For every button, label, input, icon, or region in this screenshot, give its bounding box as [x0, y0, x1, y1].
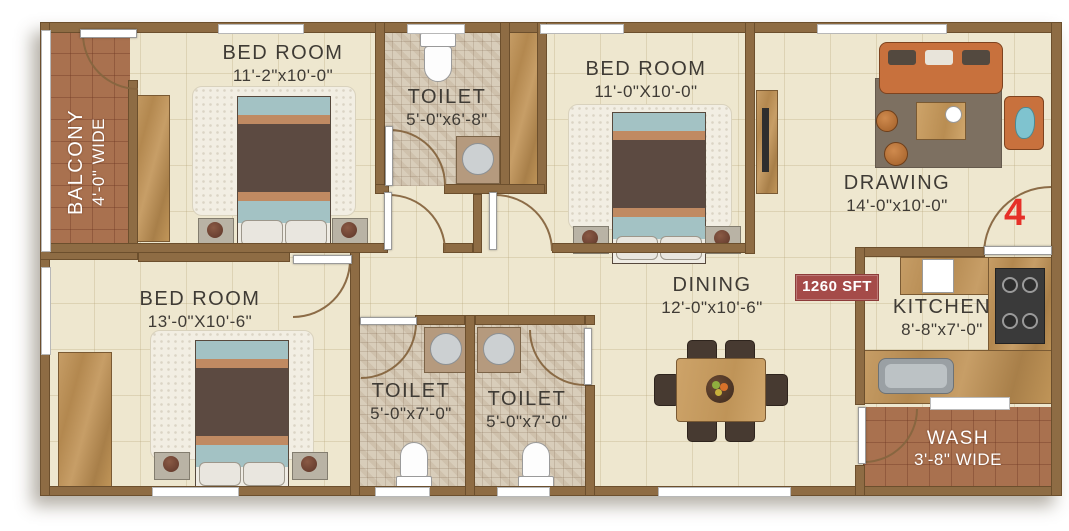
- room-name: TOILET: [387, 86, 507, 110]
- door-leaf: [385, 126, 393, 186]
- wall: [552, 243, 755, 253]
- room-name: TOILET: [468, 388, 586, 412]
- bedroom2-wardrobe: [508, 31, 540, 186]
- burner: [1022, 277, 1038, 293]
- balcony-railing: [41, 30, 51, 252]
- stool: [876, 110, 898, 132]
- room-name: BALCONY: [65, 57, 89, 267]
- label-bedroom-top-left: BED ROOM 11'-2"x10'-0": [203, 42, 363, 86]
- fridge: [922, 259, 954, 293]
- door-leaf: [858, 407, 866, 464]
- room-name: DINING: [632, 274, 792, 298]
- wall: [585, 315, 595, 325]
- toilet-bl-wc: [400, 442, 428, 478]
- room-name: WASH: [878, 428, 1038, 450]
- window: [152, 487, 239, 497]
- window: [497, 487, 550, 497]
- kitchen-sink: [878, 358, 954, 394]
- window: [658, 487, 791, 497]
- door-leaf: [489, 192, 497, 250]
- floor-plan: BALCONY 4'-0" WIDE BED ROOM 11'-2"x10'-0…: [0, 0, 1069, 531]
- room-dims: 11'-0"X10'-0": [566, 82, 726, 102]
- door-leaf: [384, 192, 392, 250]
- burner: [1002, 277, 1018, 293]
- label-balcony: BALCONY 4'-0" WIDE: [65, 57, 111, 267]
- room-dims: 5'-0"x6'-8": [387, 110, 507, 130]
- toilet-top-wash-basin: [462, 143, 494, 175]
- tv: [762, 108, 769, 172]
- door-leaf: [293, 255, 352, 264]
- room-dims: 5'-0"x7'-0": [468, 412, 586, 432]
- armchair-cushion: [1015, 107, 1035, 139]
- room-name: BED ROOM: [203, 42, 363, 66]
- room-dims: 8'-8"x7'-0": [862, 320, 1022, 340]
- stool: [884, 142, 908, 166]
- bedroom3-pillow: [199, 462, 241, 486]
- sink-basin: [885, 364, 947, 388]
- room-name: TOILET: [352, 380, 470, 404]
- wall: [350, 252, 360, 496]
- wall: [473, 194, 482, 253]
- room-name: BED ROOM: [566, 58, 726, 82]
- label-dining: DINING 12'-0"x10'-6": [632, 274, 792, 318]
- table-decor: [945, 106, 962, 123]
- window: [407, 24, 465, 34]
- room-dims: 12'-0"x10'-6": [632, 298, 792, 318]
- burner: [1022, 313, 1038, 329]
- window: [41, 267, 51, 355]
- room-dims: 4'-0" WIDE: [89, 57, 109, 267]
- bedroom3-lamp: [301, 456, 317, 472]
- toilet-top-wc-tank: [420, 33, 456, 47]
- label-bedroom-bottom-left: BED ROOM 13'-0"X10'-6": [120, 288, 280, 332]
- wall: [745, 22, 755, 254]
- window: [375, 487, 430, 497]
- bedroom1-lamp: [207, 222, 223, 238]
- wall: [128, 80, 138, 260]
- toilet-br-wc: [522, 442, 550, 478]
- toilet-top-wc: [424, 46, 452, 82]
- room-dims: 3'-8" WIDE: [878, 450, 1038, 470]
- wall: [475, 315, 585, 325]
- wall: [1051, 22, 1062, 496]
- window: [540, 24, 624, 34]
- wall: [375, 22, 385, 194]
- wall: [585, 385, 595, 496]
- unit-number: 4: [1004, 192, 1025, 235]
- main-door-leaf: [984, 246, 1052, 255]
- label-toilet-bottom-left: TOILET 5'-0"x7'-0": [352, 380, 470, 424]
- wall: [415, 315, 465, 325]
- room-dims: 13'-0"X10'-6": [120, 312, 280, 332]
- bedroom1-lamp: [341, 222, 357, 238]
- wall: [138, 252, 290, 262]
- room-dims: 14'-0"x10'-0": [817, 196, 977, 216]
- wall: [855, 465, 865, 496]
- bedroom3-pillow: [243, 462, 285, 486]
- sofa-cushion: [925, 50, 953, 65]
- label-drawing: DRAWING 14'-0"x10'-0": [817, 172, 977, 216]
- room-name: KITCHEN: [862, 296, 1022, 320]
- wall: [443, 243, 473, 253]
- fruit: [715, 389, 722, 396]
- bedroom3-wardrobe: [58, 352, 112, 492]
- door-leaf: [584, 328, 592, 385]
- door-leaf: [80, 29, 137, 38]
- area-badge: 1260 SFT: [795, 274, 879, 301]
- sofa-cushion: [962, 50, 990, 65]
- fruit: [712, 381, 720, 389]
- window: [218, 24, 304, 34]
- toilet-bl-wash-basin: [430, 333, 462, 365]
- kitchen-step: [930, 397, 1010, 410]
- wall: [855, 247, 985, 257]
- sofa-cushion: [888, 50, 916, 65]
- label-toilet-bottom-right: TOILET 5'-0"x7'-0": [468, 388, 586, 432]
- fruit-bowl: [706, 375, 734, 403]
- bedroom3-lamp: [163, 456, 179, 472]
- label-bedroom-top-mid: BED ROOM 11'-0"X10'-0": [566, 58, 726, 102]
- armchair: [1004, 96, 1044, 150]
- door-leaf: [360, 317, 417, 325]
- label-wash: WASH 3'-8" WIDE: [878, 428, 1038, 470]
- room-dims: 5'-0"x7'-0": [352, 404, 470, 424]
- label-kitchen: KITCHEN 8'-8"x7'-0": [862, 296, 1022, 340]
- label-toilet-top: TOILET 5'-0"x6'-8": [387, 86, 507, 130]
- room-name: BED ROOM: [120, 288, 280, 312]
- room-name: DRAWING: [817, 172, 977, 196]
- room-dims: 11'-2"x10'-0": [203, 66, 363, 86]
- wall: [537, 22, 547, 194]
- toilet-br-wash-basin: [483, 333, 515, 365]
- window: [817, 24, 947, 34]
